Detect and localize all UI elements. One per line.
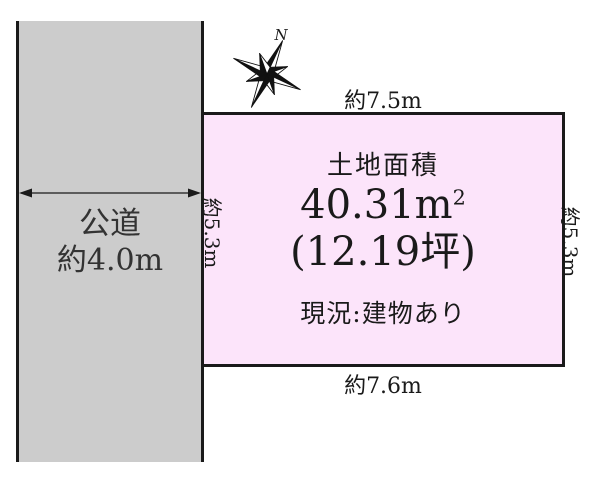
plot-area-value: 40.31m2 bbox=[201, 183, 565, 227]
dim-label-right: 約5.3m bbox=[562, 197, 586, 287]
plot-area-main: 40.31m bbox=[300, 182, 452, 228]
road-name-label: 公道 bbox=[16, 207, 204, 241]
dim-label-bottom: 約7.6m bbox=[201, 368, 565, 400]
plot-title: 土地面積 bbox=[201, 152, 565, 181]
compass-north-label: N bbox=[273, 26, 288, 44]
compass-rose-icon: N bbox=[224, 14, 312, 116]
land-plot-diagram: 公道 約4.0m 土地面積 40.31m2 (12.19坪) 現況:建物あり 約… bbox=[0, 0, 600, 482]
road-width-arrow-icon bbox=[17, 186, 203, 200]
plot-status: 現況:建物あり bbox=[201, 300, 565, 328]
road-width-label: 約4.0m bbox=[16, 244, 204, 277]
plot-area-exponent: 2 bbox=[453, 185, 466, 209]
dim-label-left: 約5.3m bbox=[204, 188, 228, 278]
plot-area-tsubo: (12.19坪) bbox=[201, 230, 565, 274]
